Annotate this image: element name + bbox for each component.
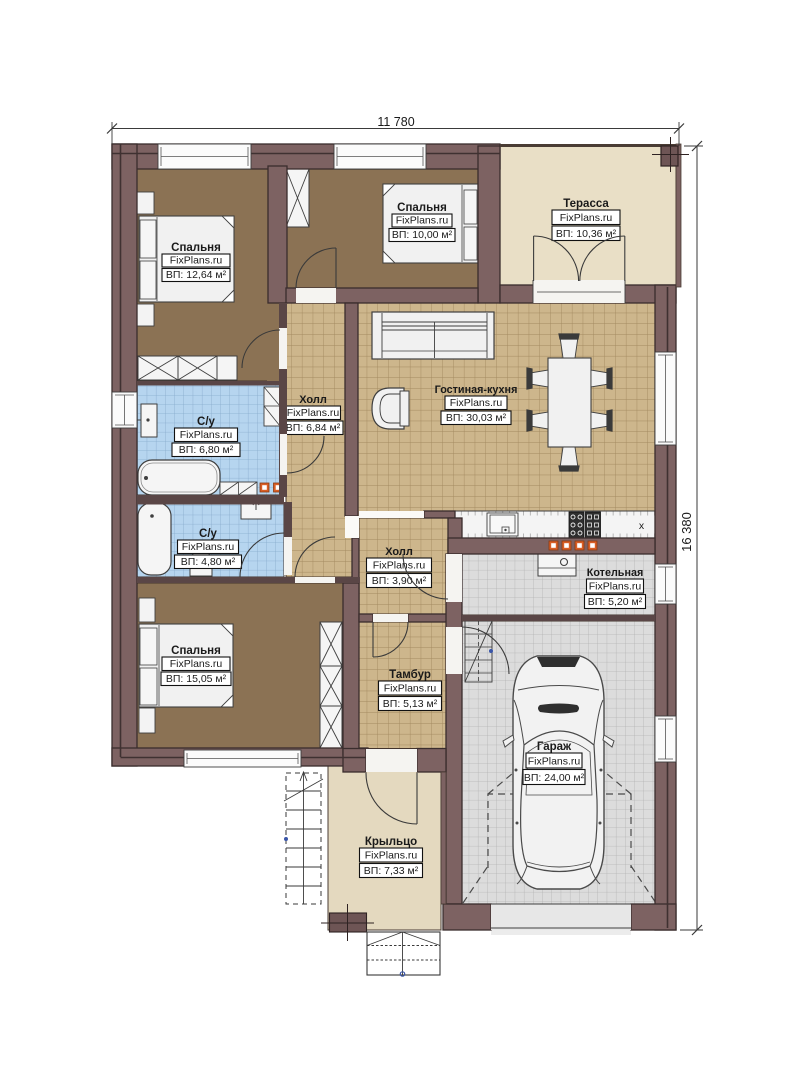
svg-text:ВП: 12,64 м²: ВП: 12,64 м² — [166, 269, 227, 281]
svg-text:FixPlans.ru: FixPlans.ru — [589, 581, 642, 593]
svg-text:ВП: 5,13 м²: ВП: 5,13 м² — [383, 698, 438, 710]
svg-text:FixPlans.ru: FixPlans.ru — [450, 397, 503, 409]
svg-text:Терасса: Терасса — [563, 198, 609, 210]
svg-text:Холл: Холл — [299, 394, 327, 406]
svg-text:FixPlans.ru: FixPlans.ru — [182, 541, 235, 553]
svg-text:16 380: 16 380 — [679, 512, 694, 552]
svg-text:Холл: Холл — [385, 546, 413, 558]
svg-text:Спальня: Спальня — [171, 242, 221, 254]
svg-text:FixPlans.ru: FixPlans.ru — [528, 756, 581, 768]
svg-text:FixPlans.ru: FixPlans.ru — [373, 560, 426, 572]
svg-text:ВП: 6,84 м²: ВП: 6,84 м² — [286, 422, 341, 434]
svg-text:FixPlans.ru: FixPlans.ru — [287, 407, 340, 419]
svg-text:Котельная: Котельная — [587, 567, 644, 579]
svg-text:Гараж: Гараж — [537, 741, 572, 753]
svg-text:Крыльцо: Крыльцо — [365, 836, 417, 848]
svg-text:FixPlans.ru: FixPlans.ru — [560, 212, 613, 224]
svg-text:ВП: 6,80 м²: ВП: 6,80 м² — [179, 444, 234, 456]
svg-text:ВП: 10,00 м²: ВП: 10,00 м² — [392, 229, 453, 241]
svg-text:FixPlans.ru: FixPlans.ru — [396, 215, 449, 227]
svg-text:ВП: 4,80 м²: ВП: 4,80 м² — [181, 556, 236, 568]
svg-text:FixPlans.ru: FixPlans.ru — [170, 255, 223, 267]
svg-text:Спальня: Спальня — [171, 645, 221, 657]
svg-text:Спальня: Спальня — [397, 202, 447, 214]
svg-text:Гостиная-кухня: Гостиная-кухня — [435, 384, 518, 396]
svg-text:Тамбур: Тамбур — [389, 669, 431, 681]
svg-text:ВП: 10,36 м²: ВП: 10,36 м² — [556, 228, 617, 240]
svg-text:FixPlans.ru: FixPlans.ru — [365, 850, 418, 862]
svg-text:11 780: 11 780 — [377, 115, 414, 129]
svg-text:x: x — [639, 520, 645, 532]
svg-text:ВП: 7,33 м²: ВП: 7,33 м² — [364, 865, 419, 877]
svg-text:FixPlans.ru: FixPlans.ru — [384, 683, 437, 695]
svg-text:FixPlans.ru: FixPlans.ru — [170, 658, 223, 670]
svg-text:FixPlans.ru: FixPlans.ru — [180, 429, 233, 441]
svg-text:ВП: 5,20 м²: ВП: 5,20 м² — [588, 596, 643, 608]
svg-text:ВП: 3,90 м²: ВП: 3,90 м² — [372, 575, 427, 587]
svg-text:ВП: 15,05 м²: ВП: 15,05 м² — [166, 673, 227, 685]
svg-text:С/у: С/у — [199, 528, 218, 540]
svg-text:С/у: С/у — [197, 416, 216, 428]
svg-text:ВП: 24,00 м²: ВП: 24,00 м² — [524, 772, 585, 784]
svg-text:ВП: 30,03 м²: ВП: 30,03 м² — [446, 412, 507, 424]
